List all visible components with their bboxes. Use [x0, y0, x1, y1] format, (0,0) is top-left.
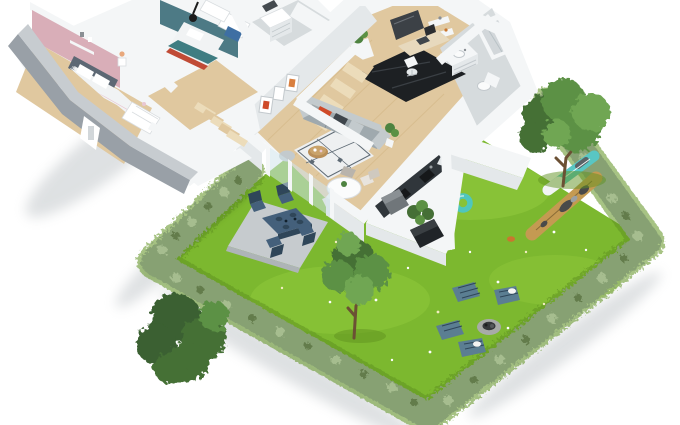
wall-door-panel	[88, 126, 94, 140]
picture-frame	[273, 86, 285, 100]
shelf-deco	[80, 32, 84, 37]
shelf-deco	[438, 16, 441, 19]
coffee-table-deco	[320, 150, 323, 153]
frame-art	[262, 101, 269, 110]
shelf-deco	[444, 28, 447, 31]
coffee-table-top	[310, 146, 326, 156]
shelf-deco	[88, 37, 92, 42]
dresser-deco	[142, 102, 146, 106]
coffee-table-deco	[313, 148, 316, 151]
corner-tree	[136, 293, 229, 384]
door-post	[266, 144, 270, 177]
tree-shadow	[334, 329, 386, 343]
lounger-cushion	[473, 341, 481, 347]
faucet	[464, 49, 466, 51]
frame-art	[288, 79, 295, 88]
fire-pit	[477, 319, 501, 335]
door-post	[330, 187, 334, 220]
door-post	[309, 173, 313, 206]
floorplan-stage	[0, 0, 680, 425]
orange-toy	[507, 236, 515, 242]
tree-shadow	[538, 171, 606, 189]
bedside-lamp	[119, 51, 124, 56]
table-centerpiece	[341, 181, 347, 187]
lounger-cushion	[508, 288, 516, 294]
door-post	[288, 159, 292, 192]
floorplan-render	[0, 0, 680, 425]
kitchen-faucet	[430, 166, 433, 169]
